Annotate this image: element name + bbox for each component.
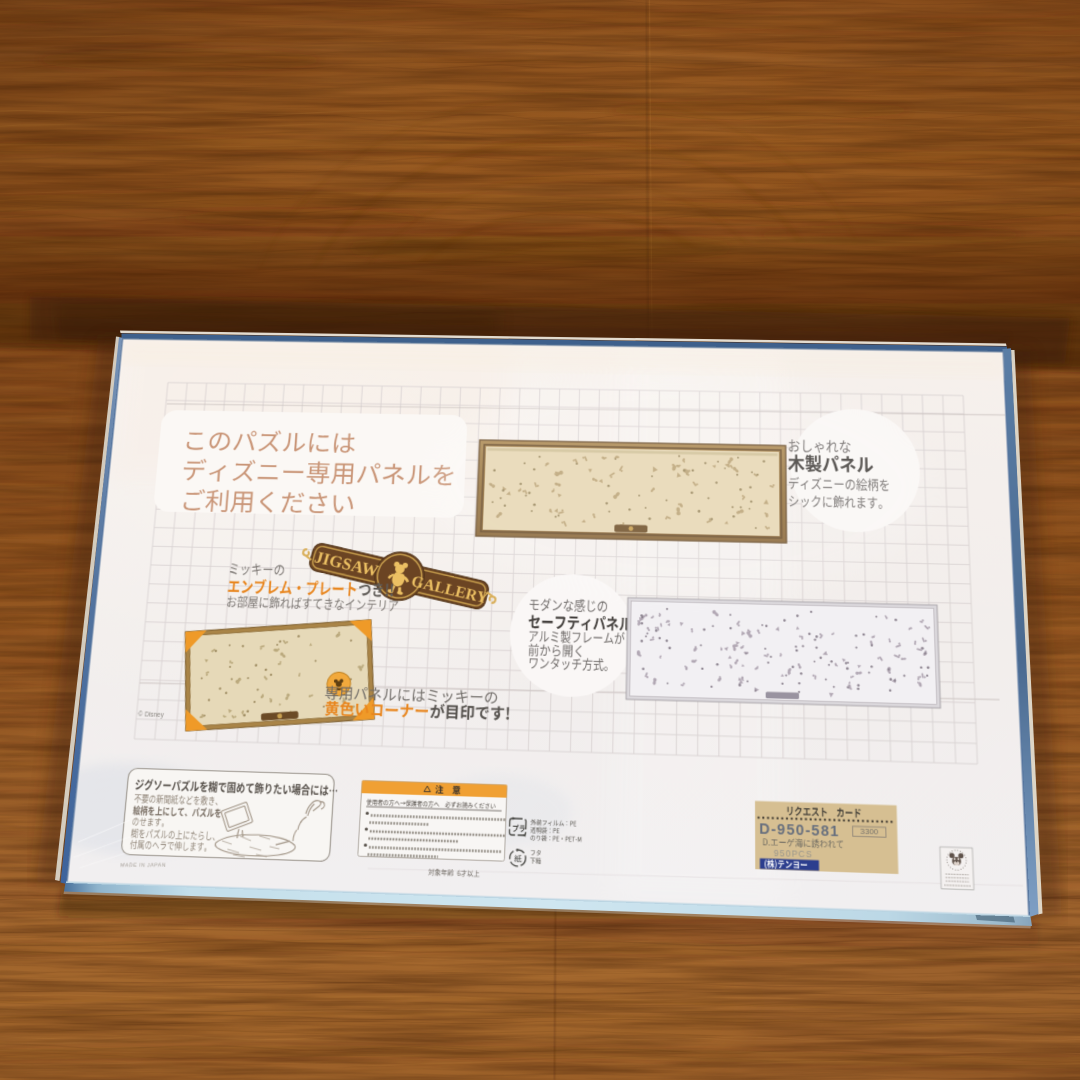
svg-text:3300: 3300	[860, 828, 878, 837]
svg-text:MADE IN JAPAN: MADE IN JAPAN	[120, 862, 166, 868]
svg-text:D-950-581: D-950-581	[759, 821, 840, 840]
svg-text:© Disney: © Disney	[138, 711, 165, 720]
svg-text:950PCS: 950PCS	[774, 848, 813, 860]
